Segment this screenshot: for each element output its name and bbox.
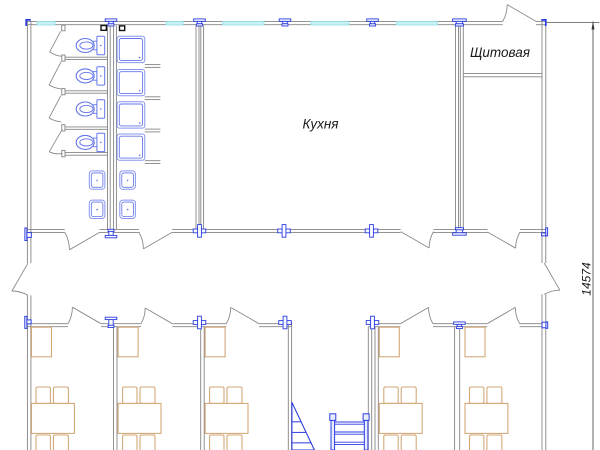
svg-text:Кухня: Кухня [303, 116, 339, 131]
svg-text:Щитовая: Щитовая [470, 45, 530, 60]
svg-text:14574: 14574 [580, 262, 594, 296]
